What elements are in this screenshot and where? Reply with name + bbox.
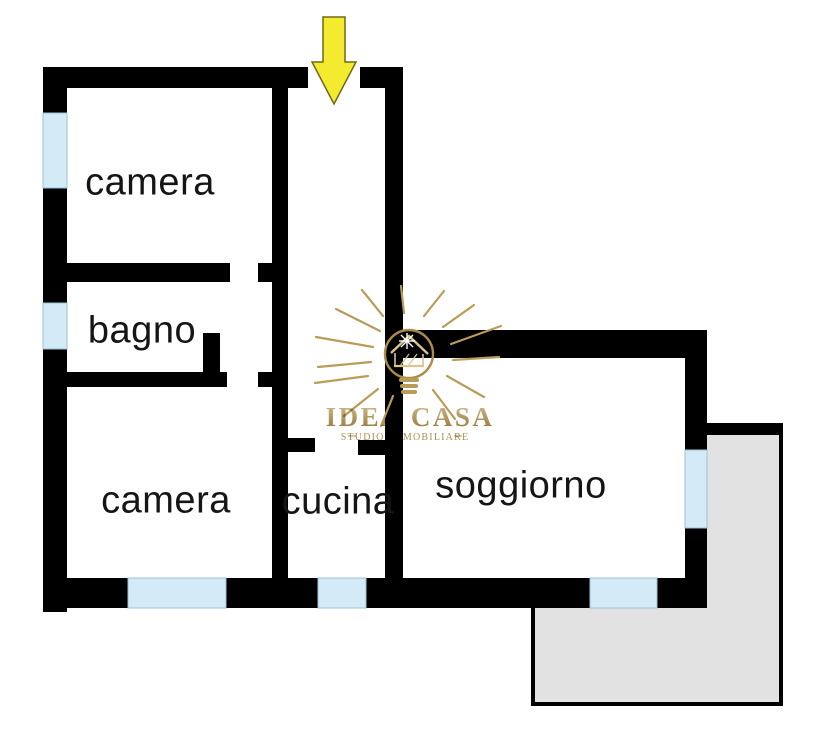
wall-alcove-stub [258, 372, 288, 387]
room-label-bagno: bagno [88, 310, 196, 353]
floor-plan-canvas: camera bagno camera cucina soggiorno [0, 0, 815, 741]
wall-top-wall [43, 67, 308, 88]
room-label-camera-1: camera [85, 162, 215, 205]
wall-camera1-bottom-wall [67, 263, 230, 282]
room-label-soggiorno: soggiorno [435, 465, 606, 508]
wall-soggiorno-top-wall [403, 330, 707, 358]
wall-top-wall-right-cap [360, 67, 403, 88]
window-soggiorno-right-window [685, 450, 707, 528]
wall-cucina-top-wall-b [358, 440, 385, 455]
wall-camera1-bottom-wall-b [258, 263, 288, 282]
window-cucina-window [318, 578, 366, 608]
wall-balcony-top-edge [703, 425, 781, 435]
room-label-camera-2: camera [101, 480, 231, 523]
window-bagno-window [43, 303, 67, 349]
window-camera2-window [128, 578, 226, 608]
floor-plan-drawing [0, 0, 815, 741]
window-camera1-window [43, 113, 67, 188]
wall-bagno-door-jamb [203, 333, 220, 387]
window-soggiorno-bottom-window [590, 578, 657, 608]
entrance-arrow-icon [312, 17, 356, 104]
wall-cucina-top-wall-a [288, 438, 315, 452]
room-label-cucina: cucina [282, 481, 395, 524]
wall-bagno-bottom-wall [43, 372, 227, 387]
entrance-arrow [312, 17, 356, 104]
